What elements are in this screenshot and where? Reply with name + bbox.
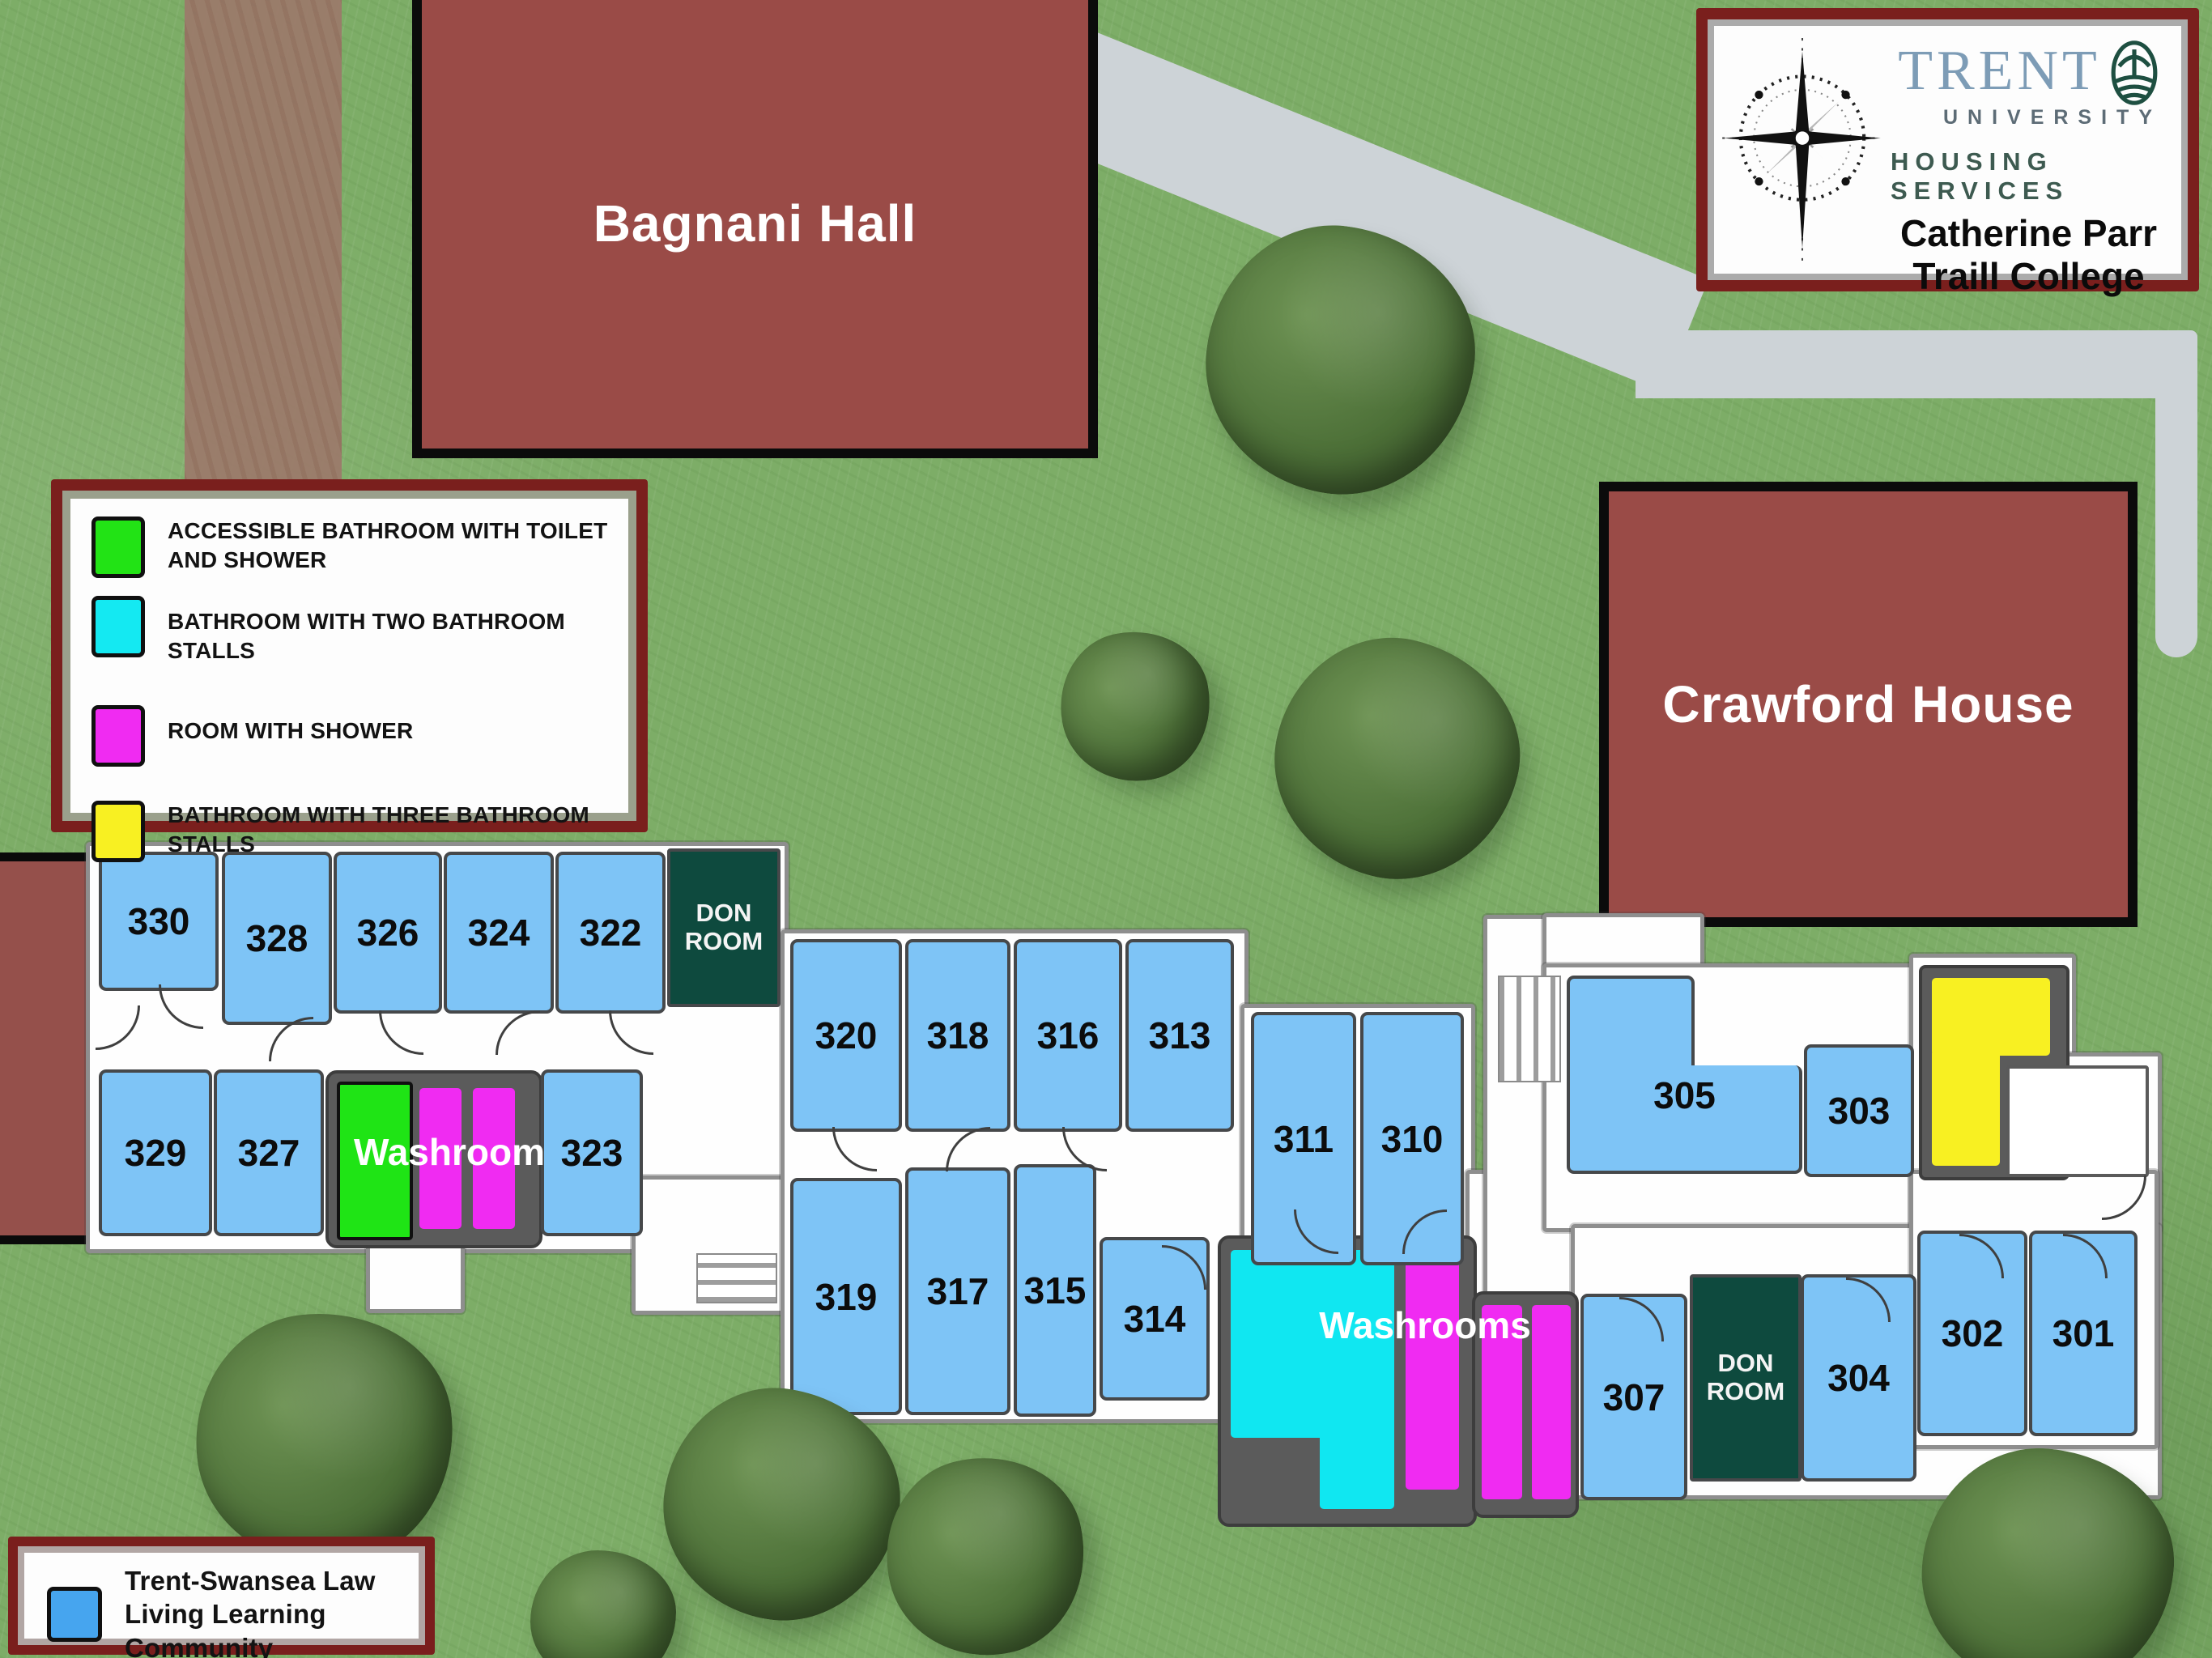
- building-bagnani-hall: Bagnani Hall: [412, 0, 1098, 458]
- university-wordmark: UNIVERSITY: [1943, 106, 2162, 130]
- room-305-main: 305: [1567, 1065, 1802, 1174]
- bathroom-legend-panel: ACCESSIBLE BATHROOM WITH TOILET AND SHOW…: [51, 479, 648, 832]
- tree: [868, 1439, 1104, 1658]
- don-room-east-label: DON ROOM: [1693, 1350, 1798, 1405]
- legend-item-room-with-shower-label: ROOM WITH SHOWER: [168, 705, 413, 746]
- two-stall-bathroom-cyan-lobe: [1320, 1376, 1394, 1509]
- room-317: 317: [905, 1167, 1010, 1415]
- room-311-label: 311: [1274, 1117, 1334, 1161]
- room-313-label: 313: [1149, 1014, 1211, 1057]
- room-320-label: 320: [815, 1014, 878, 1057]
- room-329-label: 329: [125, 1131, 187, 1175]
- west-washroom-text: Washroom: [354, 1131, 545, 1173]
- room-328: 328: [222, 852, 332, 1025]
- brown-walking-path: [185, 0, 342, 489]
- tree: [530, 1550, 676, 1658]
- legend-item-accessible-bathroom-label: ACCESSIBLE BATHROOM WITH TOILET AND SHOW…: [168, 517, 615, 576]
- shower-room-east-1: [1406, 1256, 1459, 1490]
- room-328-label: 328: [246, 916, 308, 960]
- tree: [1250, 614, 1543, 904]
- room-307-label: 307: [1603, 1375, 1665, 1419]
- room-327-label: 327: [238, 1131, 300, 1175]
- room-305-label: 305: [1653, 1073, 1716, 1117]
- green-swatch-icon: [91, 517, 145, 578]
- cyan-swatch-icon: [91, 596, 145, 657]
- legend-item-community-label: Trent-Swansea Law Living Learning Commun…: [125, 1564, 410, 1658]
- room-316: 316: [1014, 939, 1122, 1132]
- three-stall-bathroom-yellow-top: [1932, 978, 2050, 1056]
- trent-tree-logo-icon: [2109, 39, 2159, 111]
- west-wing-vestibule: [366, 1239, 465, 1313]
- stairs: [1498, 976, 1561, 1082]
- room-314-label: 314: [1124, 1297, 1186, 1341]
- legend-item-community: Trent-Swansea Law Living Learning Commun…: [47, 1564, 410, 1658]
- room-322-label: 322: [580, 911, 642, 954]
- room-329: 329: [99, 1069, 212, 1236]
- room-305: [1567, 976, 1695, 1072]
- room-326: 326: [334, 852, 442, 1014]
- logo-title-box: TRENT UNIVERSITY: [1696, 8, 2199, 291]
- campus-map: Bagnani Hall Crawford House 330 328 326 …: [0, 0, 2212, 1658]
- room-322: 322: [555, 852, 666, 1014]
- three-stall-bathroom-yellow-bottom: [1932, 1049, 2000, 1166]
- bagnani-hall-label: Bagnani Hall: [593, 193, 917, 253]
- gray-walking-path-vertical: [2155, 348, 2197, 657]
- room-324-label: 324: [468, 911, 530, 954]
- legend-item-accessible-bathroom: ACCESSIBLE BATHROOM WITH TOILET AND SHOW…: [91, 517, 615, 578]
- tree: [1049, 619, 1222, 793]
- room-319: 319: [790, 1178, 902, 1415]
- legend-item-two-stall-bathroom: BATHROOM WITH TWO BATHROOM STALLS: [91, 596, 615, 666]
- room-304-label: 304: [1827, 1356, 1890, 1400]
- room-323-label: 323: [561, 1131, 623, 1175]
- east-washroom-text: Washrooms: [1319, 1304, 1531, 1346]
- housing-services-label: HOUSING SERVICES: [1891, 147, 2167, 206]
- room-317-label: 317: [927, 1269, 989, 1313]
- room-303: 303: [1804, 1044, 1914, 1177]
- don-room-east: DON ROOM: [1690, 1274, 1802, 1482]
- room-318-label: 318: [927, 1014, 989, 1057]
- room-316-label: 316: [1037, 1014, 1100, 1057]
- blue-swatch-icon: [47, 1587, 102, 1642]
- adjacent-building-fragment: [0, 852, 96, 1244]
- room-330-label: 330: [128, 899, 190, 943]
- room-302-label: 302: [1942, 1312, 2004, 1355]
- room-303-label: 303: [1828, 1089, 1891, 1133]
- stairs: [696, 1253, 777, 1303]
- room-320: 320: [790, 939, 902, 1132]
- room-315-label: 315: [1024, 1269, 1087, 1312]
- room-323: 323: [541, 1069, 643, 1236]
- room-301-label: 301: [2052, 1312, 2115, 1355]
- compass-rose-icon: [1714, 26, 1891, 274]
- building-crawford-house: Crawford House: [1599, 482, 2138, 927]
- magenta-swatch-icon: [91, 705, 145, 767]
- legend-item-three-stall-bathroom: BATHROOM WITH THREE BATHROOM STALLS: [91, 801, 615, 862]
- room-315: 315: [1014, 1164, 1096, 1417]
- trent-wordmark: TRENT: [1898, 39, 2101, 104]
- community-legend-panel: Trent-Swansea Law Living Learning Commun…: [8, 1537, 435, 1655]
- legend-item-two-stall-bathroom-label: BATHROOM WITH TWO BATHROOM STALLS: [168, 596, 615, 666]
- legend-item-three-stall-bathroom-label: BATHROOM WITH THREE BATHROOM STALLS: [168, 801, 615, 860]
- don-room-west-label: DON ROOM: [670, 899, 777, 955]
- college-name-line1: Catherine Parr: [1900, 212, 2157, 255]
- room-327: 327: [214, 1069, 324, 1236]
- room-324: 324: [444, 852, 554, 1014]
- room-326-label: 326: [357, 911, 419, 954]
- yellow-swatch-icon: [91, 801, 145, 862]
- room-313: 313: [1125, 939, 1234, 1132]
- room-318: 318: [905, 939, 1010, 1132]
- east-washroom-label: Washrooms: [1295, 1303, 1555, 1347]
- unlabeled-room-northeast: [2006, 1065, 2149, 1177]
- room-310-label: 310: [1381, 1117, 1444, 1161]
- west-washroom-label: Washroom: [348, 1130, 551, 1174]
- crawford-house-label: Crawford House: [1662, 674, 2074, 734]
- room-319-label: 319: [815, 1275, 878, 1319]
- don-room-west: DON ROOM: [667, 848, 781, 1007]
- gray-walking-path-horizontal: [1636, 330, 2197, 398]
- college-name-line2: Traill College: [1900, 255, 2157, 298]
- room-330: 330: [99, 852, 219, 991]
- legend-item-room-with-shower: ROOM WITH SHOWER: [91, 705, 615, 767]
